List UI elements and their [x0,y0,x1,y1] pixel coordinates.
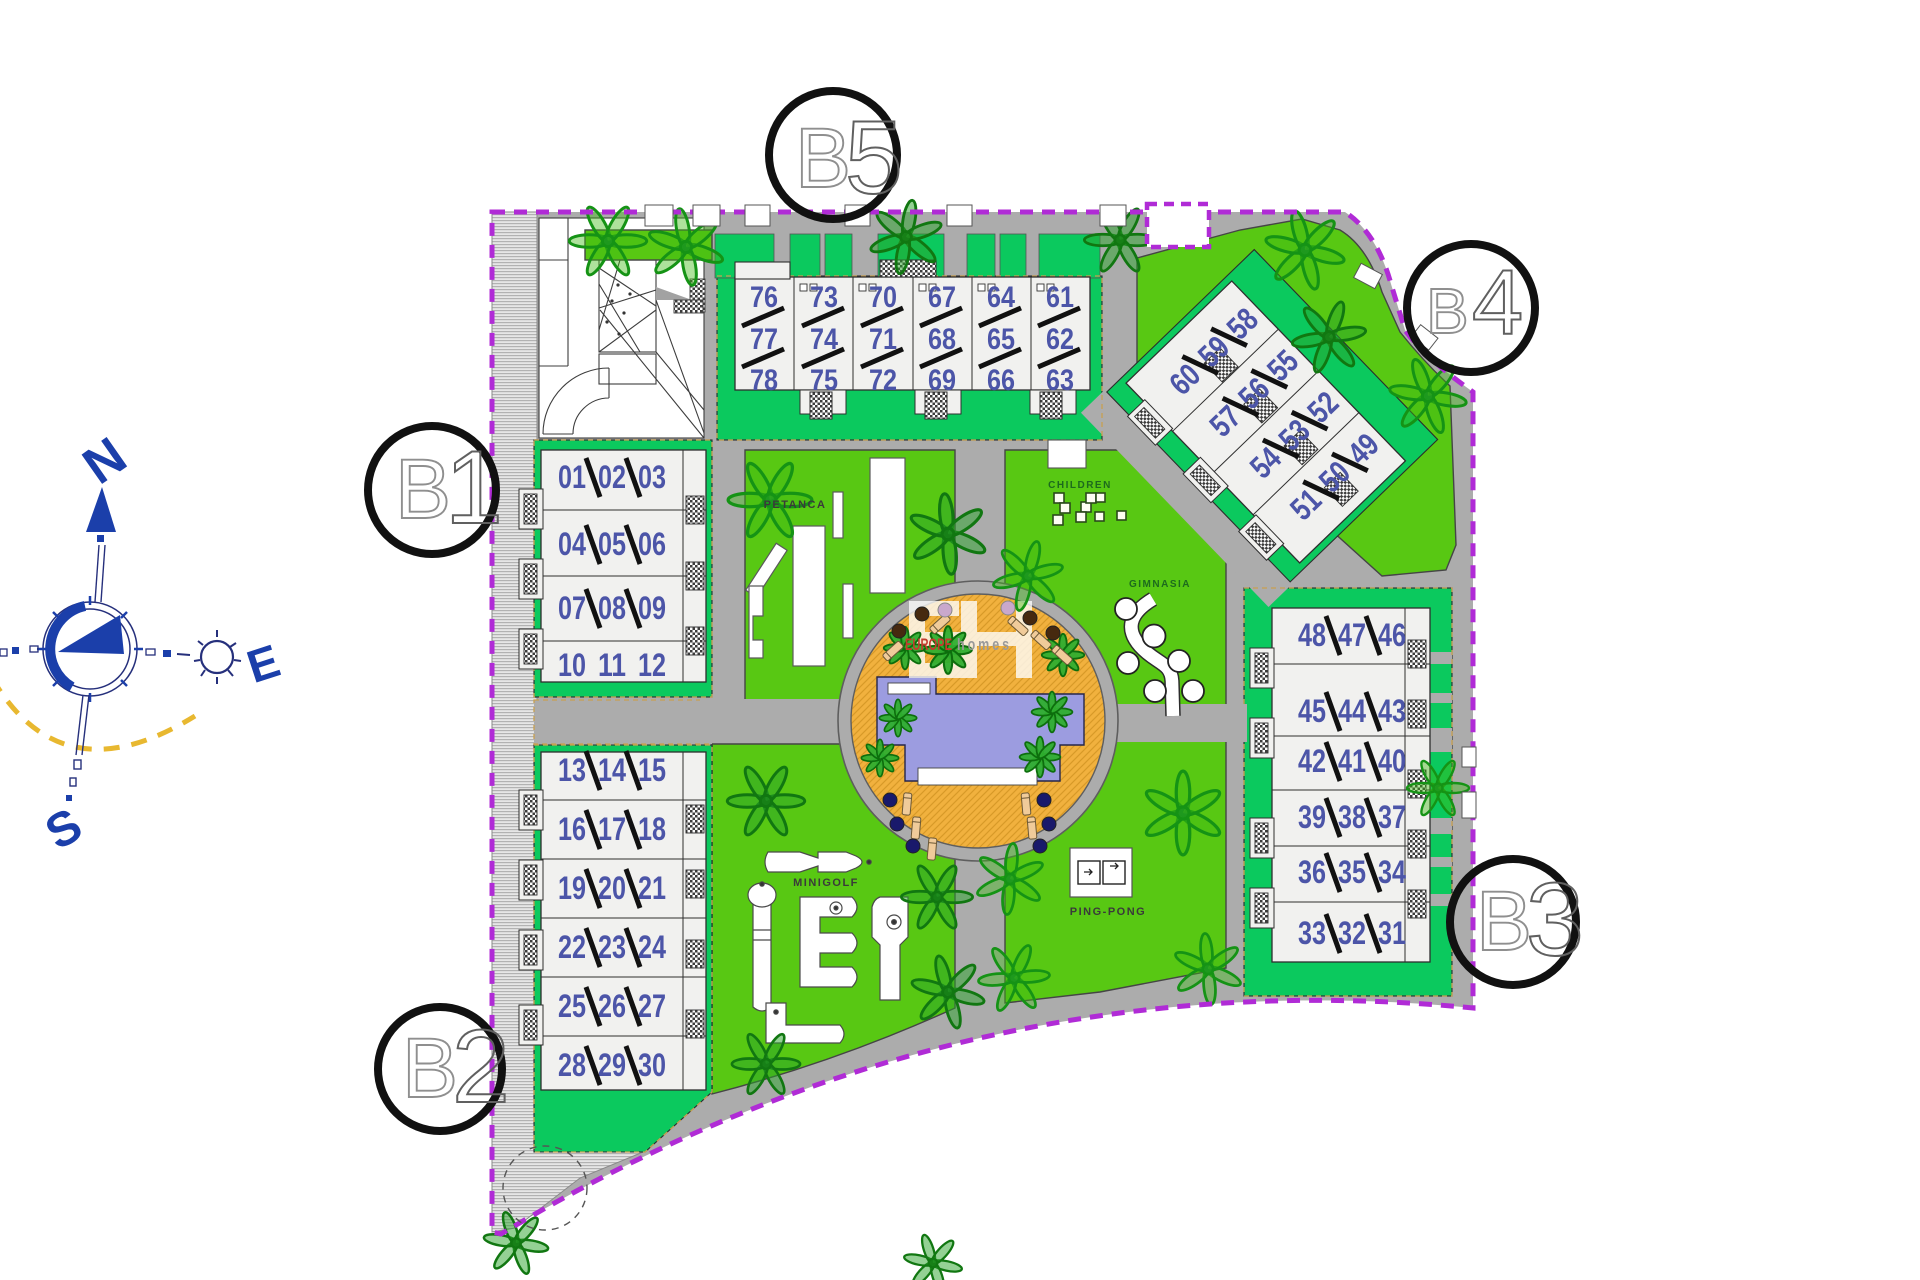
svg-text:04: 04 [558,526,586,562]
svg-text:67: 67 [928,281,956,314]
svg-text:76: 76 [750,281,778,314]
svg-text:40: 40 [1378,743,1406,779]
svg-text:29: 29 [598,1047,626,1083]
svg-text:14: 14 [598,752,626,788]
svg-text:01: 01 [558,459,586,495]
svg-text:08: 08 [598,590,626,626]
svg-text:02: 02 [598,459,626,495]
svg-text:33: 33 [1298,915,1326,951]
svg-text:3: 3 [1526,862,1584,978]
svg-text:69: 69 [928,364,956,397]
svg-text:64: 64 [987,281,1015,314]
svg-text:03: 03 [638,459,666,495]
svg-text:09: 09 [638,590,666,626]
svg-text:66: 66 [987,364,1015,397]
svg-text:23: 23 [598,929,626,965]
svg-text:18: 18 [638,811,666,847]
svg-text:06: 06 [638,526,666,562]
svg-text:B: B [395,442,451,536]
svg-text:B: B [402,1021,458,1115]
svg-text:B: B [1426,275,1469,347]
svg-text:15: 15 [638,752,666,788]
svg-text:72: 72 [869,364,897,397]
svg-text:B: B [1476,874,1532,968]
svg-text:13: 13 [558,752,586,788]
svg-text:34: 34 [1378,854,1406,890]
svg-text:46: 46 [1378,617,1406,653]
svg-text:19: 19 [558,870,586,906]
svg-text:homes: homes [957,635,1012,654]
svg-text:37: 37 [1378,799,1406,835]
svg-text:25: 25 [558,988,586,1024]
svg-text:12: 12 [638,647,666,683]
svg-text:S: S [37,798,91,860]
svg-text:31: 31 [1378,915,1406,951]
svg-text:MINIGOLF: MINIGOLF [793,877,859,889]
svg-text:45: 45 [1298,693,1326,729]
svg-text:63: 63 [1046,364,1074,397]
svg-text:26: 26 [598,988,626,1024]
svg-text:B: B [795,111,851,205]
svg-text:11: 11 [598,647,626,683]
svg-text:47: 47 [1338,617,1366,653]
svg-text:PING-PONG: PING-PONG [1070,906,1146,918]
svg-text:28: 28 [558,1047,586,1083]
svg-text:07: 07 [558,590,586,626]
svg-text:78: 78 [750,364,778,397]
svg-text:35: 35 [1338,854,1366,890]
svg-text:GIMNASIA: GIMNASIA [1129,579,1191,590]
svg-text:70: 70 [869,281,897,314]
svg-text:24: 24 [638,929,666,965]
svg-text:27: 27 [638,988,666,1024]
svg-text:CHILDREN: CHILDREN [1048,480,1112,491]
svg-text:48: 48 [1298,617,1326,653]
svg-text:41: 41 [1338,743,1366,779]
svg-text:44: 44 [1338,693,1366,729]
svg-text:2: 2 [452,1009,510,1125]
svg-text:N: N [73,427,137,496]
svg-text:30: 30 [638,1047,666,1083]
svg-text:43: 43 [1378,693,1406,729]
svg-text:1: 1 [445,430,503,546]
svg-text:E: E [241,634,286,693]
svg-text:36: 36 [1298,854,1326,890]
svg-text:17: 17 [598,811,626,847]
svg-text:EUROPE: EUROPE [905,635,952,654]
svg-text:21: 21 [638,870,666,906]
svg-text:22: 22 [558,929,586,965]
svg-text:75: 75 [810,364,838,397]
svg-text:PETANCA: PETANCA [764,499,827,511]
svg-text:4: 4 [1472,252,1523,354]
svg-text:32: 32 [1338,915,1366,951]
svg-text:05: 05 [598,526,626,562]
svg-text:16: 16 [558,811,586,847]
svg-text:5: 5 [845,100,903,216]
svg-text:20: 20 [598,870,626,906]
svg-text:61: 61 [1046,281,1074,314]
svg-text:38: 38 [1338,799,1366,835]
svg-text:42: 42 [1298,743,1326,779]
svg-text:10: 10 [558,647,586,683]
svg-text:73: 73 [810,281,838,314]
svg-text:39: 39 [1298,799,1326,835]
